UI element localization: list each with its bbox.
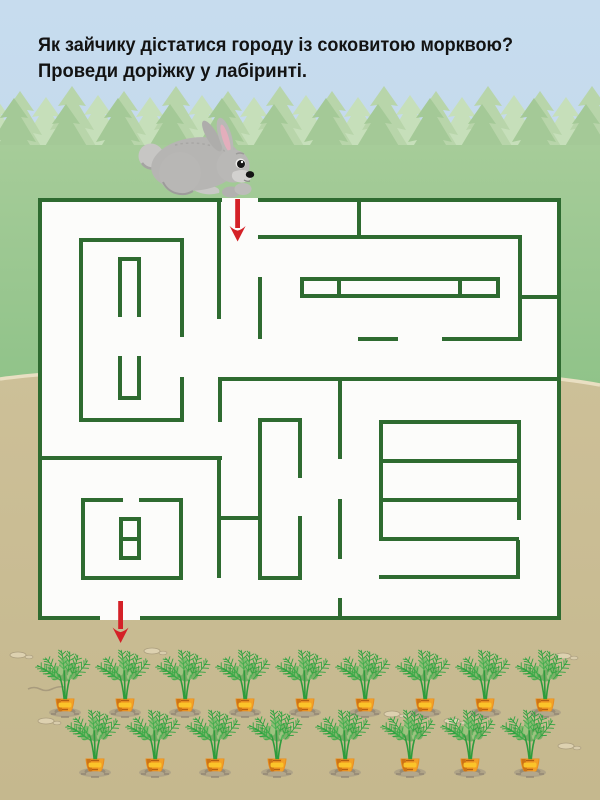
svg-text:Як зайчику дістатися городу із: Як зайчику дістатися городу із соковитою… bbox=[38, 34, 513, 56]
svg-text:Проведи доріжку у лабіринті.: Проведи доріжку у лабіринті. bbox=[38, 60, 307, 82]
